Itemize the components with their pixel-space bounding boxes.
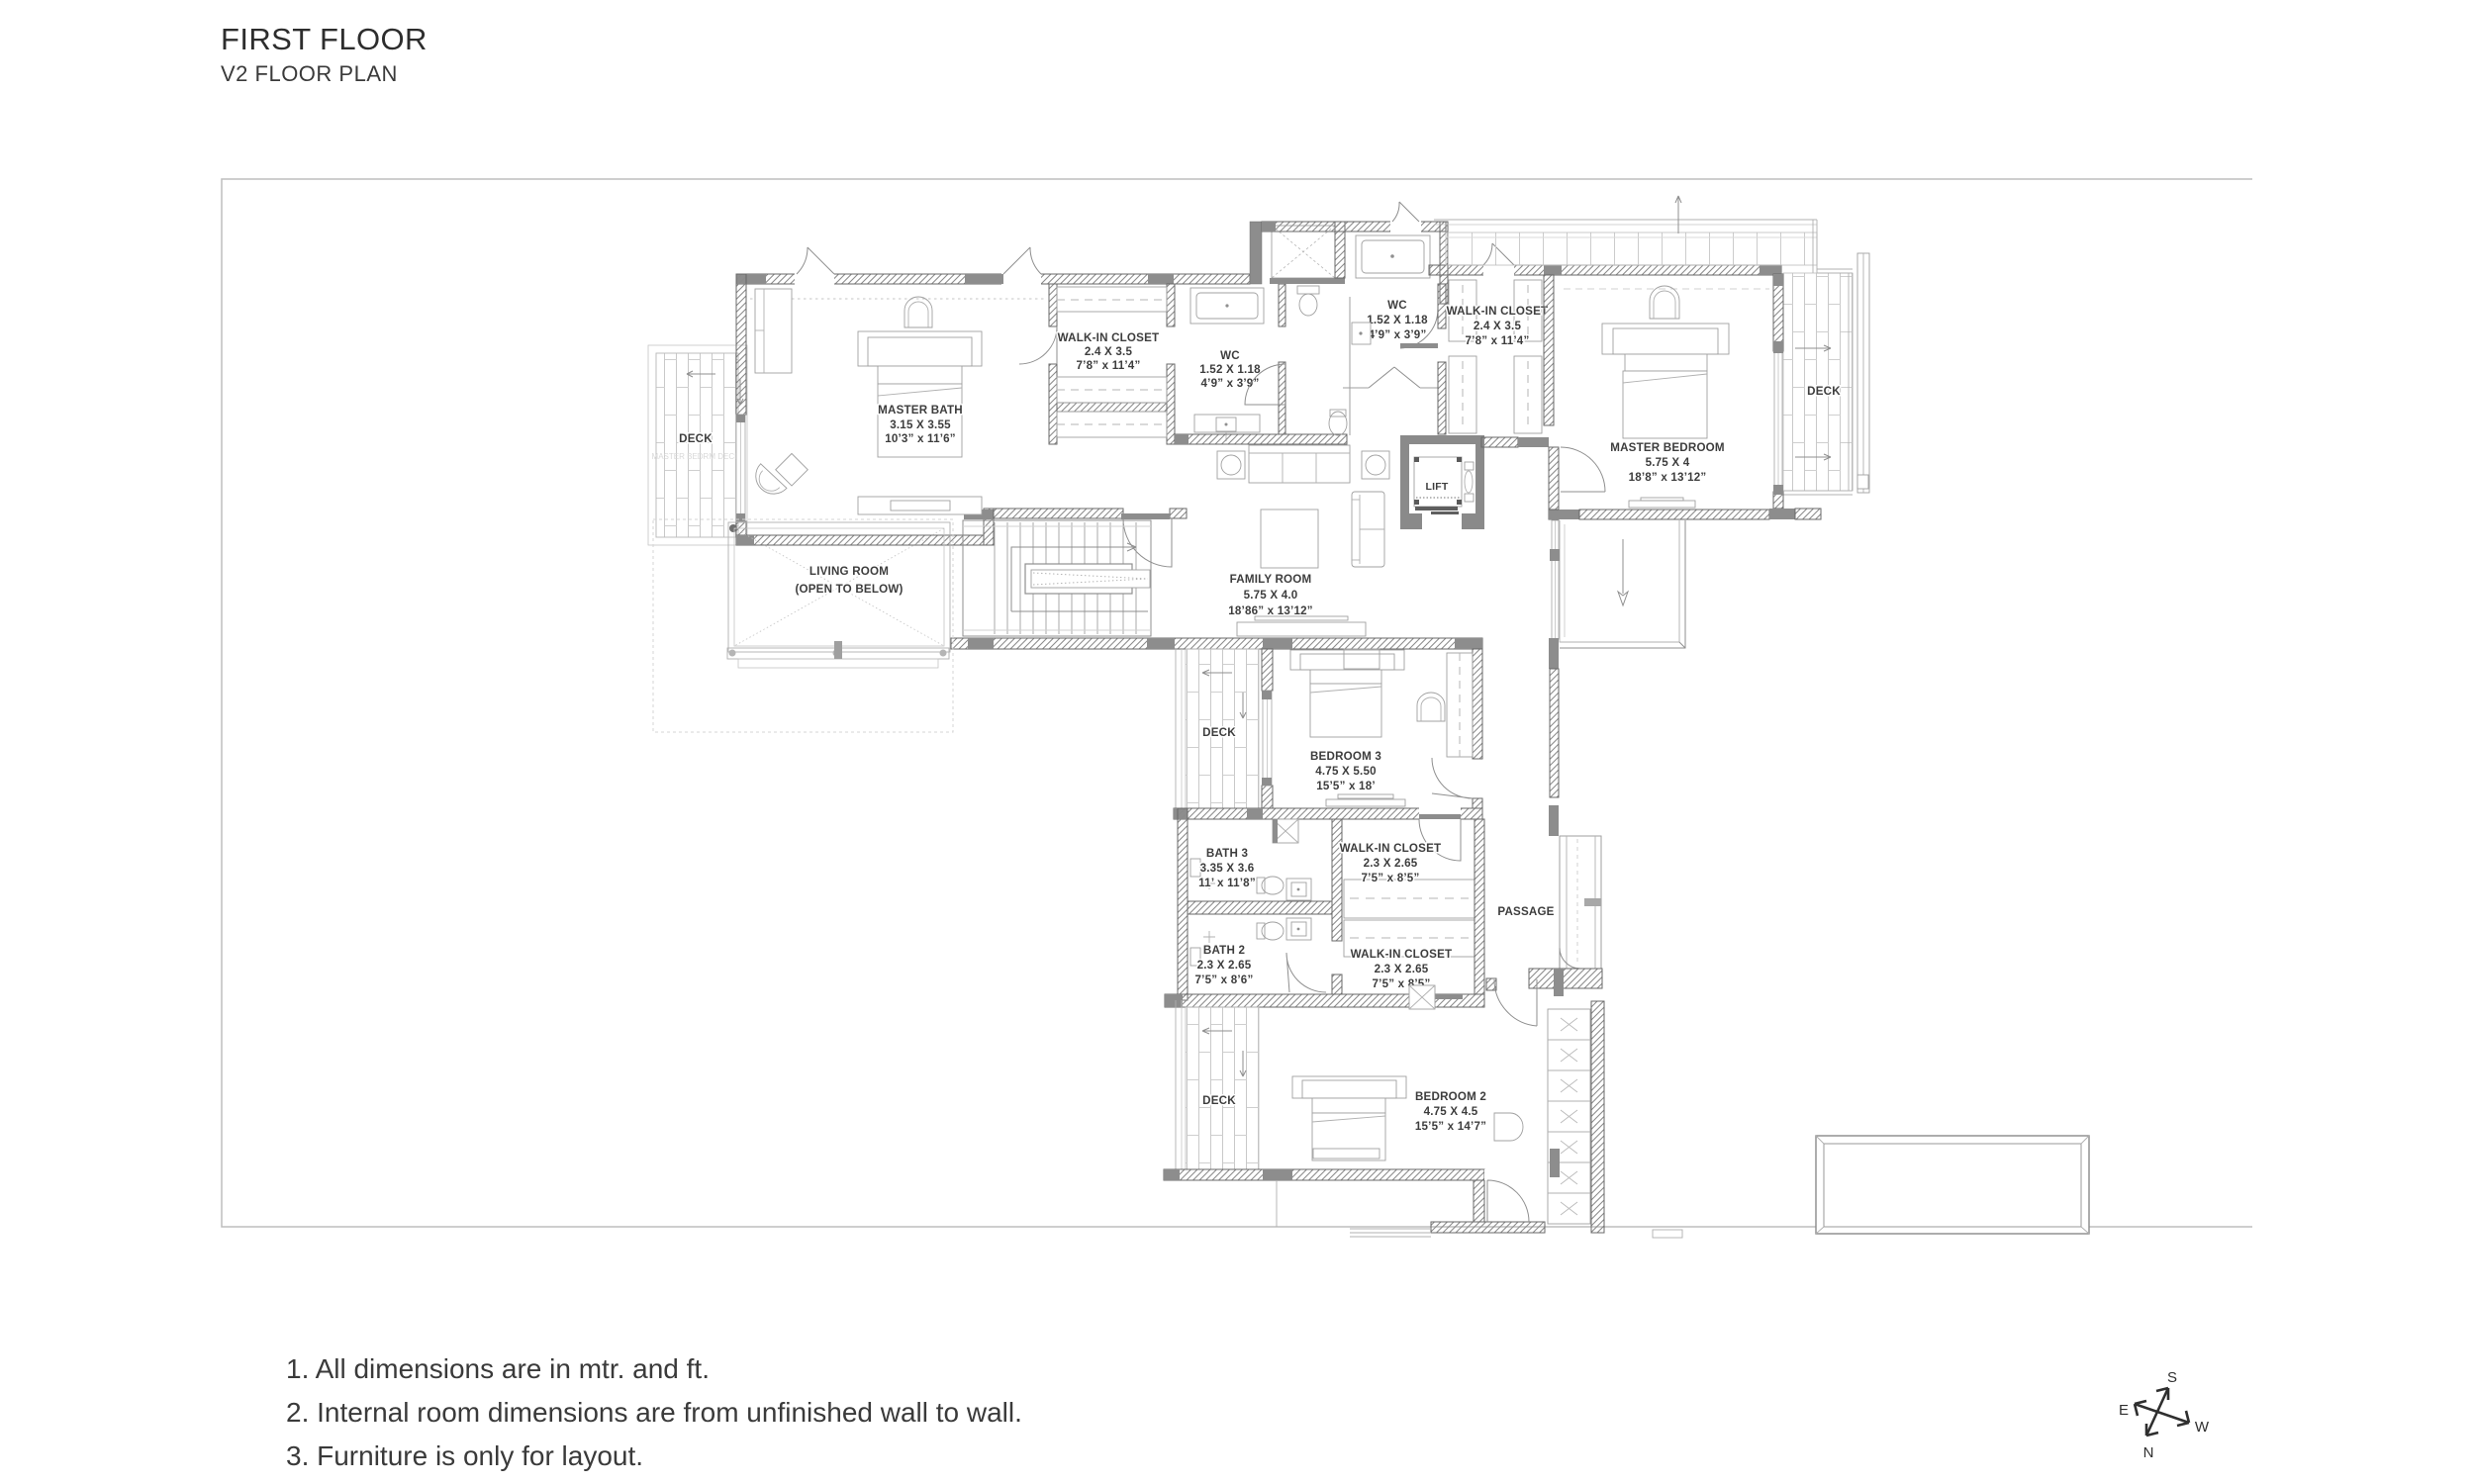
svg-text:LIFT: LIFT	[1426, 481, 1449, 493]
svg-text:MASTER BEDROOM: MASTER BEDROOM	[1610, 441, 1725, 454]
svg-text:4.75 X 5.50: 4.75 X 5.50	[1315, 765, 1377, 778]
svg-text:FAMILY ROOM: FAMILY ROOM	[1230, 573, 1312, 586]
svg-text:5.75 X 4: 5.75 X 4	[1646, 456, 1690, 469]
svg-text:1. All dimensions are in mtr.: 1. All dimensions are in mtr. and ft.	[286, 1353, 710, 1384]
svg-text:BEDROOM 3: BEDROOM 3	[1310, 750, 1381, 763]
svg-text:PASSAGE: PASSAGE	[1497, 905, 1554, 918]
svg-text:7’5” x 8’6”: 7’5” x 8’6”	[1195, 974, 1254, 986]
svg-text:4.75 X 4.5: 4.75 X 4.5	[1424, 1105, 1478, 1118]
svg-text:5.75 X 4.0: 5.75 X 4.0	[1244, 589, 1298, 602]
svg-text:3. Furniture is only for layou: 3. Furniture is only for layout.	[286, 1440, 643, 1471]
svg-text:DECK: DECK	[1202, 1094, 1236, 1107]
svg-text:15’5” x 18’: 15’5” x 18’	[1316, 780, 1376, 792]
svg-text:BATH 3: BATH 3	[1206, 847, 1249, 860]
svg-text:1.52 X 1.18: 1.52 X 1.18	[1199, 363, 1261, 376]
svg-text:2. Internal room dimensions ar: 2. Internal room dimensions are from unf…	[286, 1397, 1022, 1428]
svg-text:LIVING ROOM: LIVING ROOM	[809, 565, 889, 578]
svg-text:3.15 X 3.55: 3.15 X 3.55	[890, 418, 951, 431]
svg-text:15’5” x 14’7”: 15’5” x 14’7”	[1415, 1120, 1486, 1133]
svg-text:18’86” x 13’12”: 18’86” x 13’12”	[1228, 604, 1313, 617]
svg-text:WALK-IN CLOSET: WALK-IN CLOSET	[1340, 842, 1442, 855]
svg-text:7’5” x 8’5”: 7’5” x 8’5”	[1362, 872, 1420, 884]
svg-text:S: S	[2167, 1369, 2177, 1386]
svg-text:N: N	[2143, 1444, 2154, 1461]
svg-text:WC: WC	[1220, 349, 1240, 362]
svg-text:V2 FLOOR PLAN: V2 FLOOR PLAN	[221, 61, 398, 86]
svg-text:MASTER BATH: MASTER BATH	[878, 404, 963, 417]
svg-text:2.4 X 3.5: 2.4 X 3.5	[1474, 320, 1522, 332]
svg-text:WALK-IN CLOSET: WALK-IN CLOSET	[1351, 948, 1453, 961]
svg-text:WC: WC	[1387, 299, 1407, 312]
svg-text:FIRST FLOOR: FIRST FLOOR	[221, 22, 428, 56]
svg-text:2.3 X 2.65: 2.3 X 2.65	[1364, 857, 1418, 870]
svg-text:WALK-IN CLOSET: WALK-IN CLOSET	[1447, 305, 1549, 318]
svg-text:11’ x 11’8”: 11’ x 11’8”	[1198, 877, 1256, 889]
svg-text:BATH 2: BATH 2	[1203, 944, 1245, 957]
svg-text:(OPEN TO BELOW): (OPEN TO BELOW)	[795, 583, 903, 596]
svg-text:BEDROOM 2: BEDROOM 2	[1415, 1090, 1486, 1103]
svg-text:10’3” x 11’6”: 10’3” x 11’6”	[885, 432, 956, 445]
svg-text:WALK-IN CLOSET: WALK-IN CLOSET	[1058, 331, 1160, 344]
svg-text:7’8” x 11’4”: 7’8” x 11’4”	[1466, 334, 1530, 347]
svg-text:W: W	[2195, 1419, 2210, 1436]
svg-text:18’8” x 13’12”: 18’8” x 13’12”	[1629, 471, 1707, 484]
svg-text:4’9” x 3’9”: 4’9” x 3’9”	[1369, 328, 1427, 341]
svg-text:DECK: DECK	[679, 432, 713, 445]
svg-text:DECK: DECK	[1202, 726, 1236, 739]
svg-text:2.3 X 2.65: 2.3 X 2.65	[1197, 959, 1252, 972]
svg-text:3.35 X 3.6: 3.35 X 3.6	[1200, 862, 1255, 875]
svg-text:2.3 X 2.65: 2.3 X 2.65	[1375, 963, 1429, 975]
svg-text:MASTER BEDRM DECK: MASTER BEDRM DECK	[652, 452, 741, 461]
svg-text:E: E	[2119, 1402, 2129, 1419]
svg-text:1.52 X 1.18: 1.52 X 1.18	[1367, 314, 1428, 326]
svg-text:7’8” x 11’4”: 7’8” x 11’4”	[1077, 359, 1141, 372]
svg-text:DECK: DECK	[1807, 385, 1841, 398]
svg-text:2.4 X 3.5: 2.4 X 3.5	[1085, 345, 1133, 358]
